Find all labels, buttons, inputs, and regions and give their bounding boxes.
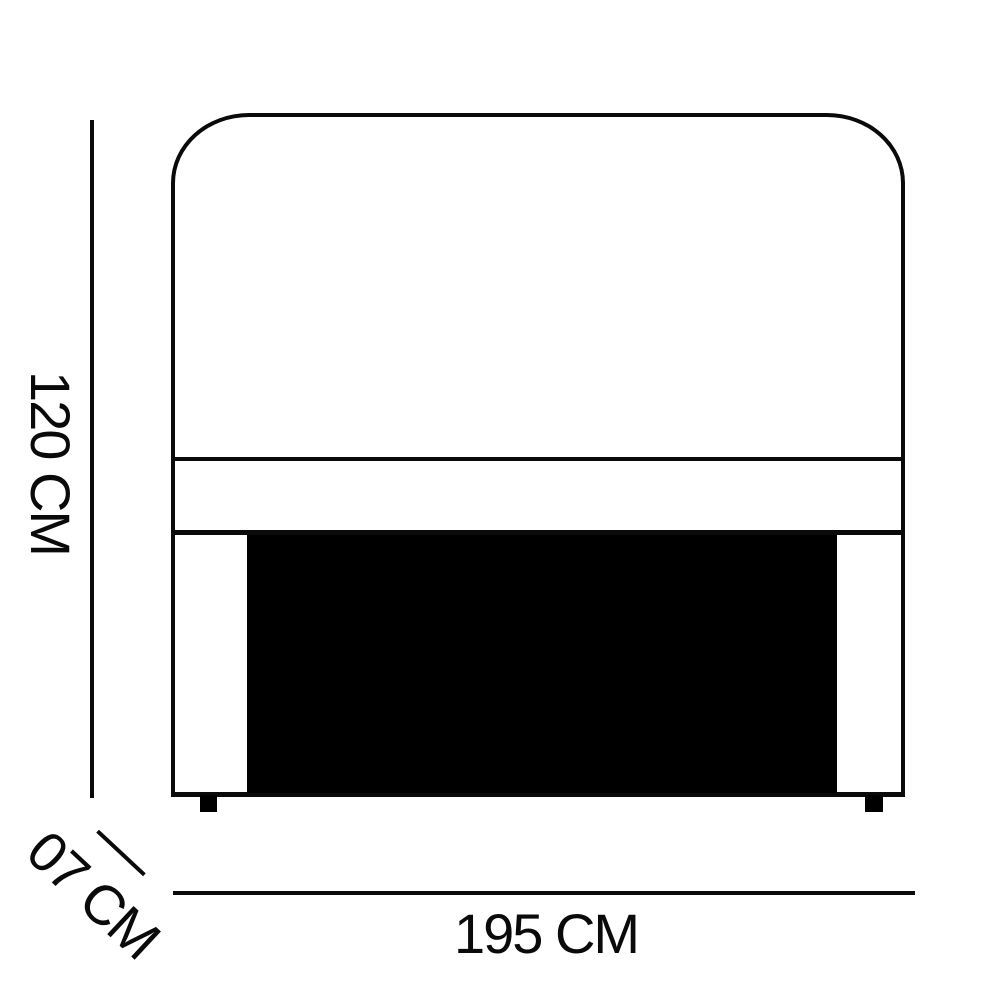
width-dimension-line [173,891,915,895]
dimension-diagram-canvas: 120 CM 195 CM 07 CM [0,0,1000,1000]
right-foot [865,795,883,812]
width-dimension-label: 195 CM [396,906,696,962]
depth-dimension-label: 07 CM [17,821,165,964]
base-upholstery-panel [247,535,837,793]
left-foot [200,795,217,812]
upper-seam-line [175,457,901,461]
height-dimension-label: 120 CM [22,363,78,563]
height-dimension-line [90,120,94,798]
